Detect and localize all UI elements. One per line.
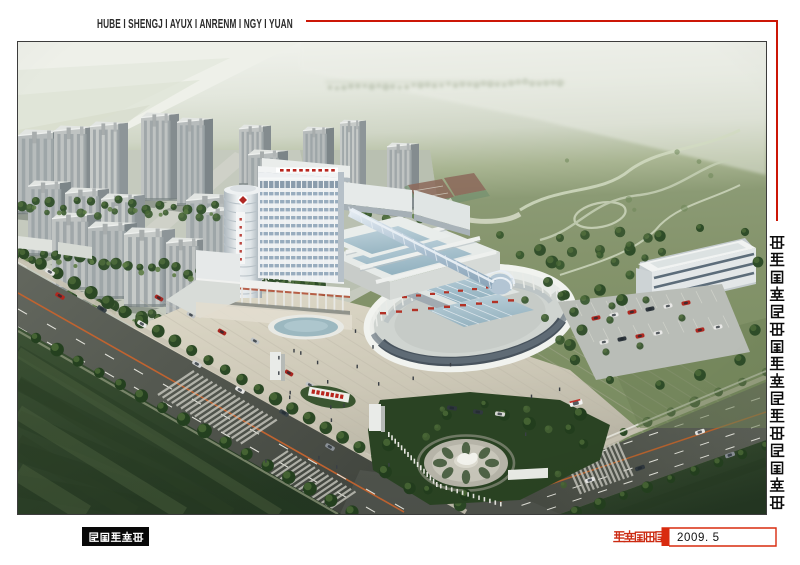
svg-text:2009. 5: 2009. 5	[677, 532, 720, 544]
